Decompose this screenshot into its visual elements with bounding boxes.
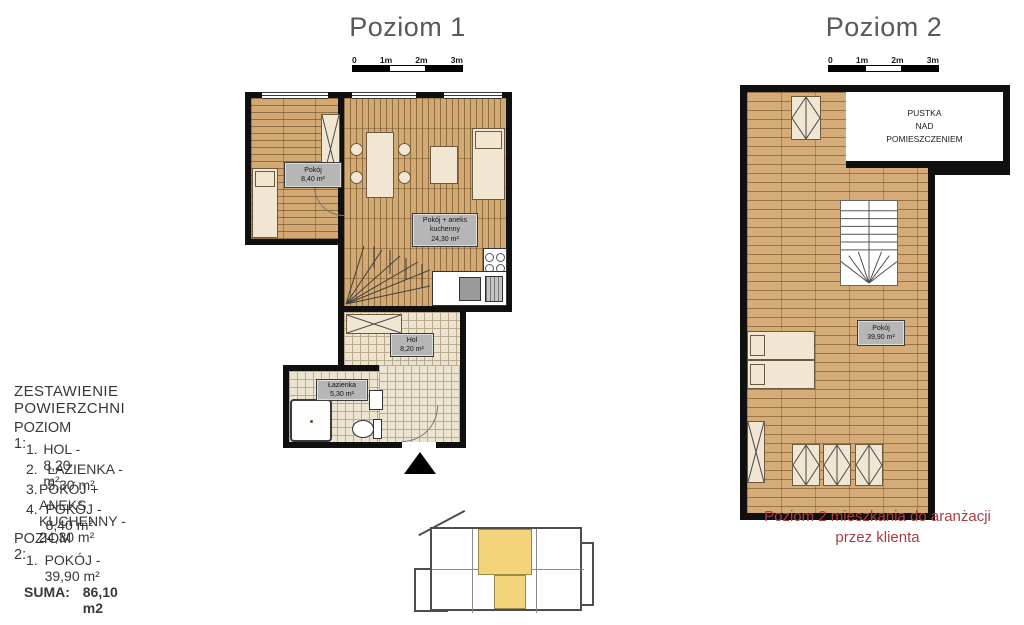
key-plan-unit-highlight xyxy=(494,575,526,609)
level2-scale-bar: 0 1m 2m 3m xyxy=(828,55,939,72)
level2-title: Poziom 2 xyxy=(790,12,978,43)
key-plan-divider xyxy=(472,529,473,613)
table xyxy=(430,146,458,184)
item-label: POKÓJ - 8,40 m² xyxy=(46,501,108,533)
scale-tick: 2m xyxy=(415,55,427,65)
pillow xyxy=(475,131,502,149)
toilet-tank xyxy=(373,419,382,439)
sink xyxy=(459,277,481,301)
scale-tick: 2m xyxy=(891,55,903,65)
summary-item: 1. POKÓJ - 39,90 m² xyxy=(26,552,107,584)
room-name: Łazienka xyxy=(317,381,367,390)
item-number: 1. xyxy=(26,552,45,584)
key-plan-unit-highlight xyxy=(478,529,532,575)
caption-line: Poziom 2 mieszkania do aranżacji xyxy=(735,506,1020,527)
room-area: 5,30 m² xyxy=(317,390,367,399)
pillow xyxy=(750,335,765,356)
summary-total: SUMA: 86,10 m2 xyxy=(24,584,131,616)
scale-segment xyxy=(829,66,865,71)
room-label-pokoj-small: Pokój 8,40 m² xyxy=(284,162,342,188)
shower-tray xyxy=(290,399,332,442)
room-name: Pokój + aneks xyxy=(413,216,477,225)
dish-rack xyxy=(485,276,503,302)
room-name: Pokój xyxy=(285,166,341,175)
scale-bar-graphic xyxy=(828,65,939,72)
scale-tick: 1m xyxy=(856,55,868,65)
void-label: PUSTKA xyxy=(846,107,1003,120)
summary-item: 4. POKÓJ - 8,40 m² xyxy=(26,501,107,533)
item-label: POKÓJ - 39,90 m² xyxy=(45,552,108,584)
room-area: 8,20 m² xyxy=(391,345,433,354)
scale-segment xyxy=(902,66,938,71)
summary-heading: ZESTAWIENIE POWIERZCHNI xyxy=(14,383,125,417)
bed xyxy=(747,331,815,360)
void-label: NAD xyxy=(846,120,1003,133)
scale-segment xyxy=(426,66,462,71)
scale-tick: 0 xyxy=(352,55,357,65)
bed xyxy=(747,360,815,389)
skylight xyxy=(791,96,821,140)
pillow xyxy=(255,171,275,187)
skylight xyxy=(823,444,851,486)
scale-tick: 1m xyxy=(380,55,392,65)
caption-line: przez klienta xyxy=(735,527,1020,548)
chair xyxy=(350,143,363,156)
washbasin xyxy=(369,390,383,410)
scale-segment xyxy=(865,66,903,71)
scale-tick: 3m xyxy=(927,55,939,65)
room-area: 39,90 m² xyxy=(858,333,904,342)
drain xyxy=(310,420,313,423)
window xyxy=(352,92,416,99)
scale-tick: 3m xyxy=(451,55,463,65)
wardrobe xyxy=(747,421,765,483)
total-label: SUMA: xyxy=(24,584,83,616)
room-label-main: Pokój + aneks kuchenny 24,30 m² xyxy=(412,213,478,247)
room-name: kuchenny xyxy=(413,225,477,234)
total-value: 86,10 m2 xyxy=(83,584,131,616)
window xyxy=(262,92,328,99)
room-name: Hol xyxy=(391,336,433,345)
skylight xyxy=(792,444,820,486)
chair xyxy=(398,143,411,156)
level1-title: Poziom 1 xyxy=(300,12,515,43)
void-area: PUSTKA NAD POMIESZCZENIEM xyxy=(846,92,1003,168)
scale-segment xyxy=(353,66,389,71)
wardrobe xyxy=(346,314,402,334)
scale-bar-graphic xyxy=(352,65,463,72)
pillow xyxy=(750,364,765,385)
entrance-opening xyxy=(402,442,436,448)
room-area: 8,40 m² xyxy=(285,175,341,184)
room-label-hol: Hol 8,20 m² xyxy=(390,333,434,357)
skylight xyxy=(855,444,883,486)
level2-caption: Poziom 2 mieszkania do aranżacji przez k… xyxy=(735,506,1020,548)
room-label-pokoj-level2: Pokój 39,90 m² xyxy=(857,320,905,346)
room-area: 24,30 m² xyxy=(413,235,477,244)
bed xyxy=(252,168,278,238)
key-plan-divider xyxy=(536,529,537,613)
window xyxy=(444,92,502,99)
scale-labels: 0 1m 2m 3m xyxy=(828,55,939,65)
toilet-bowl xyxy=(352,420,374,438)
scale-labels: 0 1m 2m 3m xyxy=(352,55,463,65)
chair xyxy=(350,171,363,184)
scale-tick: 0 xyxy=(828,55,833,65)
item-number: 4. xyxy=(26,501,46,533)
burner xyxy=(496,253,505,262)
burner xyxy=(485,253,494,262)
scale-segment xyxy=(389,66,427,71)
sofa-bed xyxy=(472,128,505,200)
stairs xyxy=(344,246,430,306)
dining-table xyxy=(366,132,394,198)
room-name: Pokój xyxy=(858,324,904,333)
level1-scale-bar: 0 1m 2m 3m xyxy=(352,55,463,72)
chair xyxy=(398,171,411,184)
kitchen-counter xyxy=(432,271,507,306)
room-label-lazienka: Łazienka 5,30 m² xyxy=(316,379,368,401)
entrance-arrow-icon xyxy=(404,452,436,474)
void-label: POMIESZCZENIEM xyxy=(846,133,1003,146)
stairs xyxy=(840,200,898,286)
